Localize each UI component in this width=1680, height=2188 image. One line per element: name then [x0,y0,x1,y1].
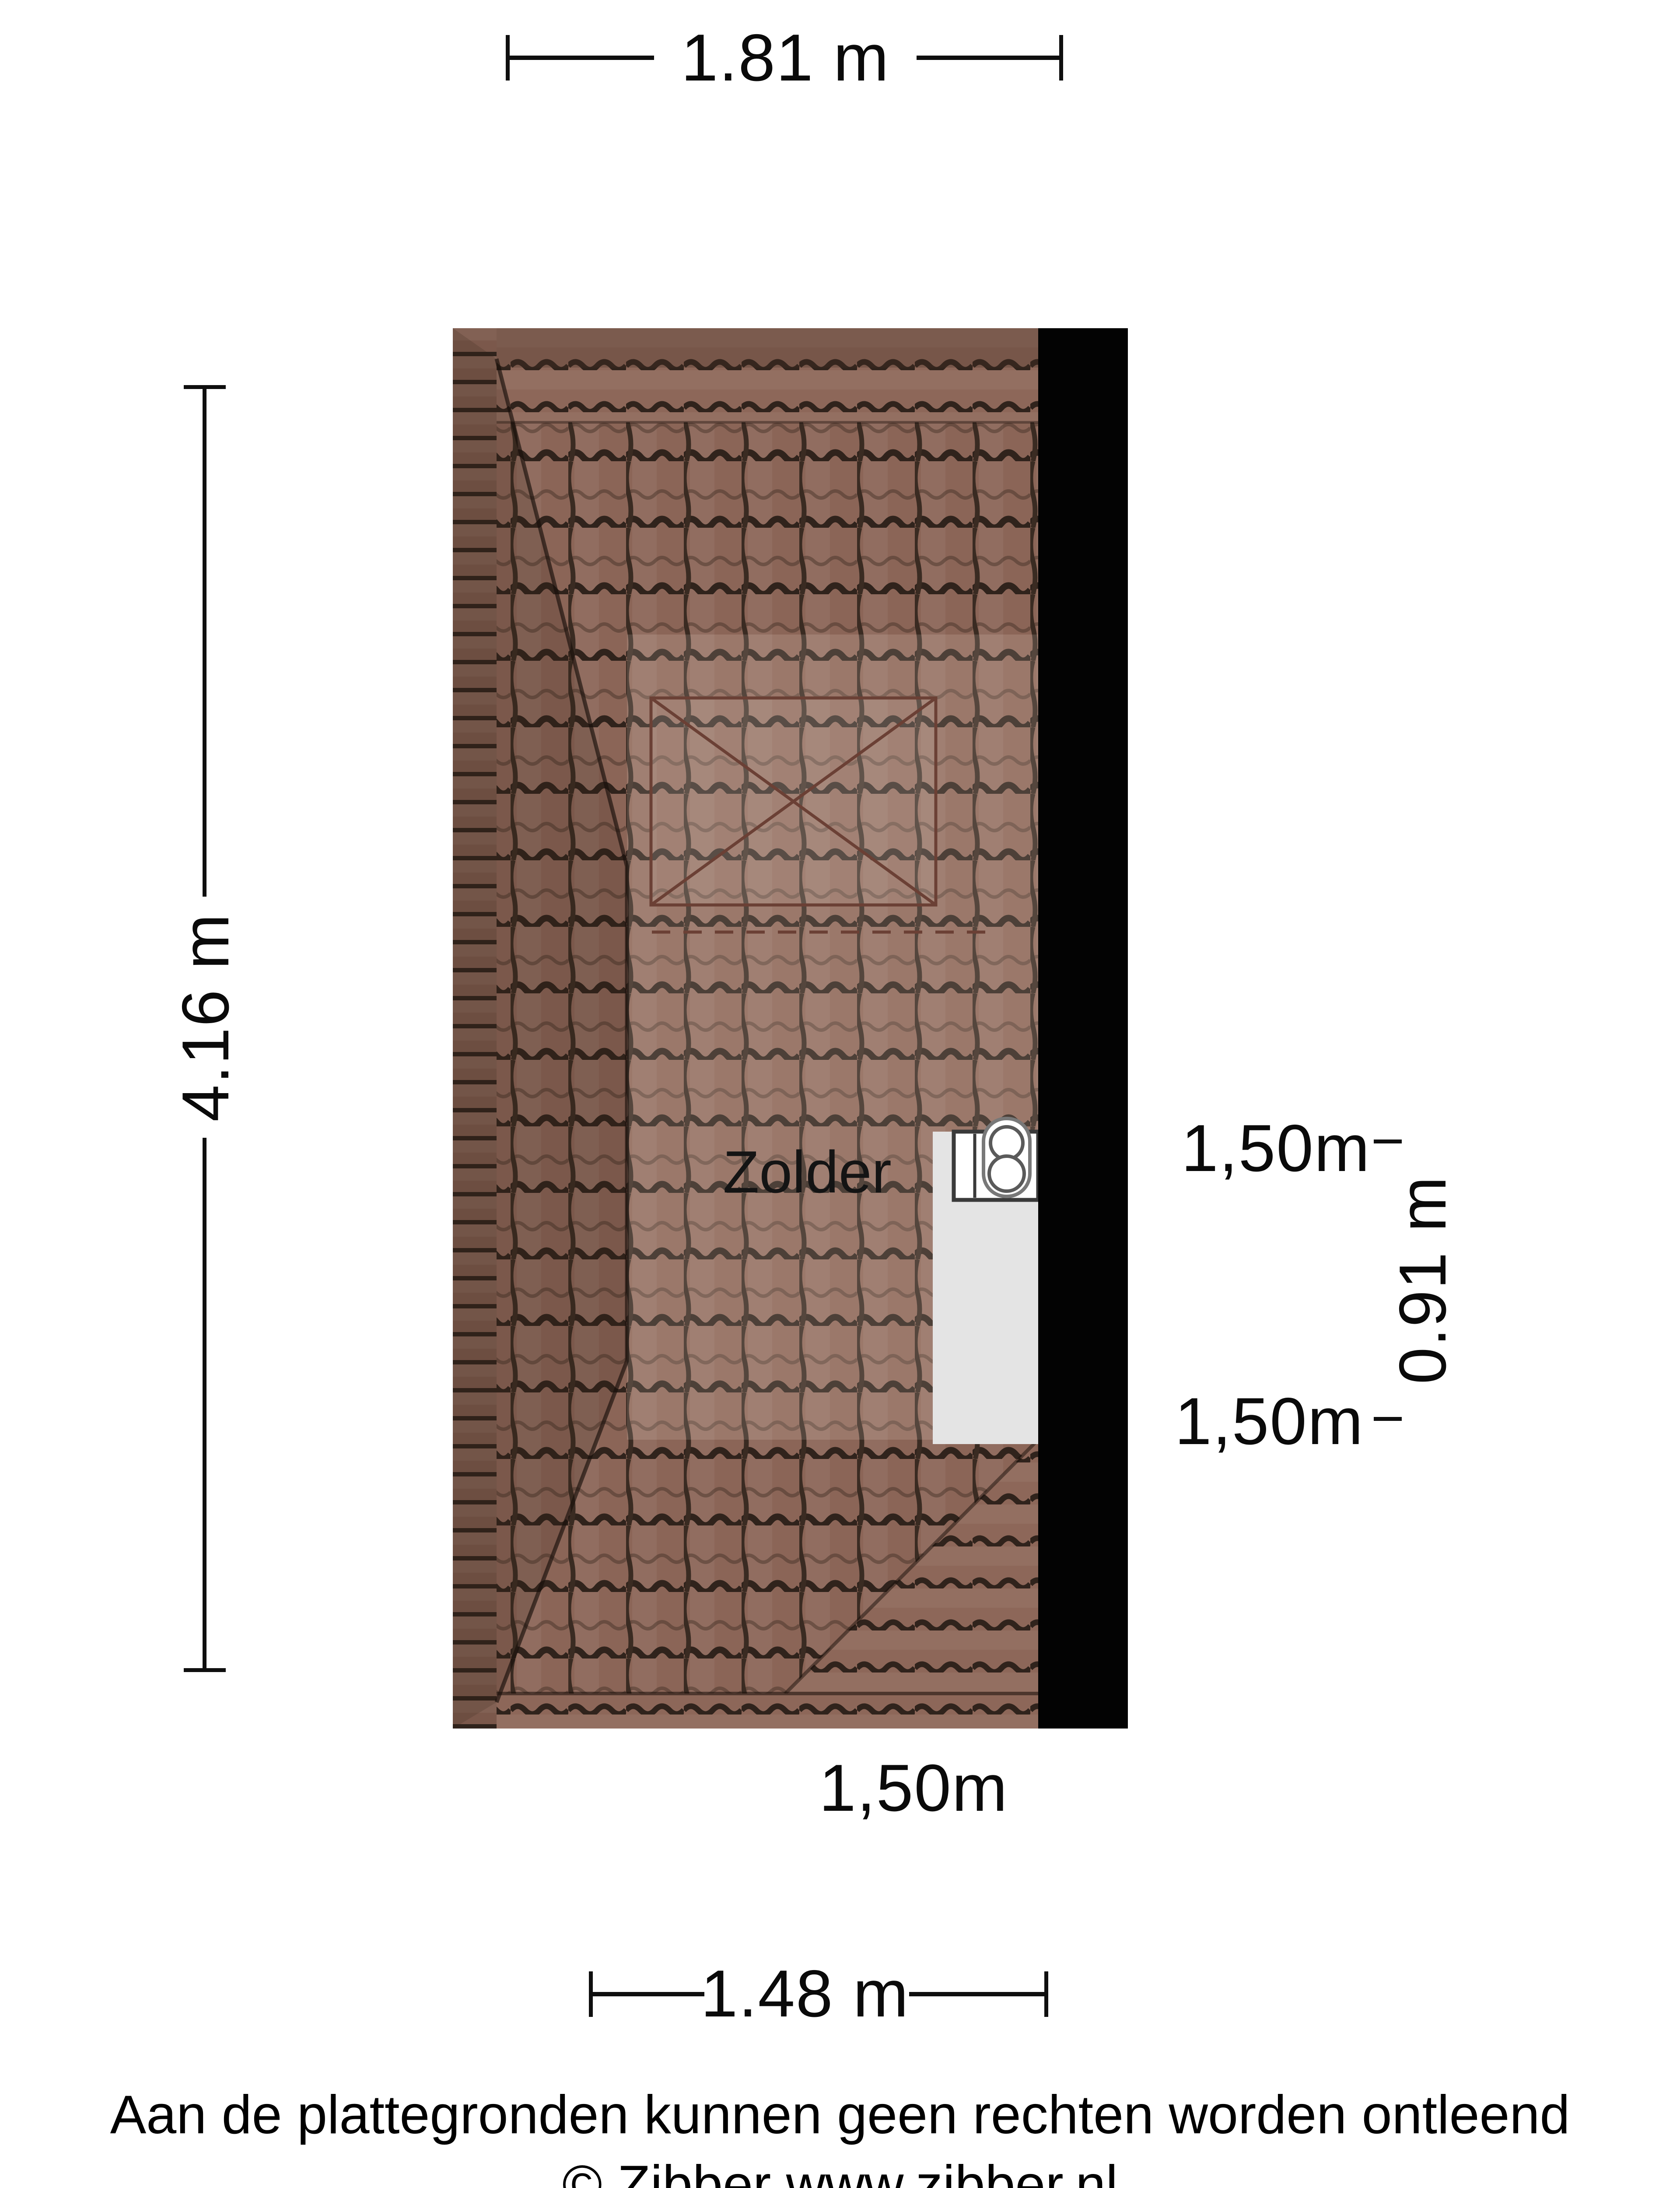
niche-dimension-label: 0.91 m [1389,1176,1456,1385]
left-dimension-tick-bottom [184,1668,226,1672]
room-label: Zolder [723,1142,892,1202]
wall [1038,328,1128,1729]
bottom-dimension-line-right [909,1992,1046,1996]
top-dimension-line-right [917,56,1061,60]
bottom-dimension-label: 1.48 m [701,1960,910,2027]
top-dimension-label: 1.81 m [681,25,890,91]
headroom-label-right-bottom: 1,50m [1175,1388,1364,1455]
top-dimension-tick-right [1059,35,1063,81]
boiler-icon [954,1119,1038,1200]
floorplan-canvas: 1.81 m 4.16 m [0,0,1680,2188]
headroom-label-bottom: 1,50m [819,1755,1008,1821]
top-dimension-line-left [507,56,654,60]
headroom-label-right-top: 1,50m [1181,1115,1370,1182]
left-dimension-line-bottom [203,1138,206,1670]
bottom-dimension-line-left [591,1992,704,1996]
niche-dimension-tick-bottom [1374,1417,1402,1421]
niche-dimension-tick-top [1374,1140,1402,1143]
left-dimension-label: 4.16 m [172,913,239,1122]
left-dimension-line-top [203,387,206,897]
disclaimer-text: Aan de plattegronden kunnen geen rechten… [0,2084,1680,2146]
credit-text: © Zibber www.zibber.nl [0,2154,1680,2188]
bottom-dimension-tick-right [1044,1971,1048,2017]
roof-tiles-graphic [453,328,1128,1729]
plan-area [453,328,1128,1729]
